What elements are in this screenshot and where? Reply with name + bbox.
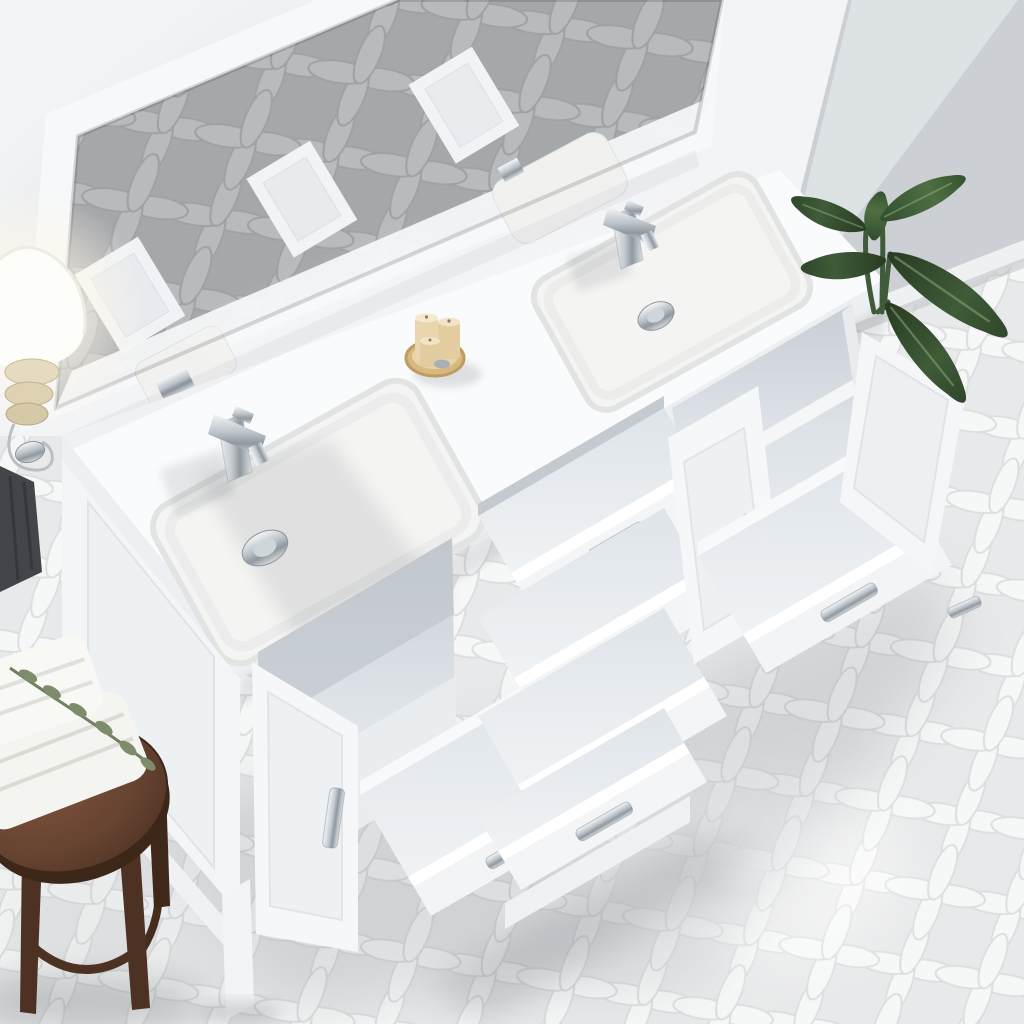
vignette <box>0 0 1024 1024</box>
scene-canvas <box>0 0 1024 1024</box>
bathroom-vanity-photo <box>0 0 1024 1024</box>
